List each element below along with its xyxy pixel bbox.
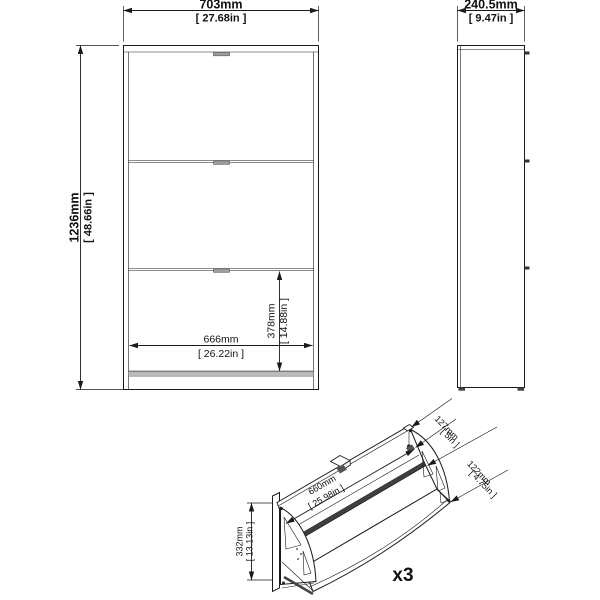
side-handle [525, 160, 530, 163]
side-handle-profiles [525, 52, 530, 270]
front-bottom-rail [129, 372, 314, 376]
dim-front-width: 703mm [ 27.68in ] [124, 0, 319, 42]
dim-side-depth: 240.5mm [ 9.47in ] [458, 0, 525, 42]
dim-detail-height-mm: 332mm [235, 526, 245, 556]
front-drawer-handles [214, 52, 230, 272]
dim-front-height-in: [ 48.66in ] [83, 192, 95, 243]
side-view: 240.5mm [ 9.47in ] [458, 0, 530, 391]
dim-front-inner-height: 378mm [ 14.88in ] [266, 272, 291, 372]
dim-side-depth-in: [ 9.47in ] [469, 13, 514, 25]
side-handle [525, 52, 530, 55]
dim-front-width-mm: 703mm [199, 0, 242, 12]
side-foot [459, 388, 466, 391]
dim-inner-height-mm: 378mm [266, 303, 278, 338]
dim-detail-height-in: [ 13.13in ] [245, 522, 255, 562]
side-handle [525, 267, 530, 270]
detail-quantity-label: x3 [392, 565, 413, 586]
side-cabinet-outline [458, 46, 525, 388]
drawer-handle [214, 269, 230, 272]
dim-front-height: 1236mm [ 48.66in ] [68, 46, 124, 390]
dim-front-width-in: [ 27.68in ] [196, 13, 247, 25]
drawer-handle [214, 52, 230, 55]
front-view: 703mm [ 27.68in ] 1236mm [ 48.66in ] 666… [68, 0, 319, 390]
dim-inner-width-mm: 666mm [203, 334, 238, 346]
dim-side-depth-mm: 240.5mm [464, 0, 518, 12]
hinge-pivot [448, 500, 451, 503]
dim-detail-top-in: [ 5in ] [439, 427, 461, 450]
dim-inner-height-in: [ 14.88in ] [278, 298, 290, 344]
hinge-pivot [279, 507, 283, 511]
dim-inner-width-in: [ 26.22in ] [198, 348, 244, 360]
dim-detail-height: 332mm [ 13.13in ] [235, 503, 273, 580]
hinge-pivot [282, 582, 285, 585]
detail-view: 660mm [ 25.98in ] 332mm [ 13.13in ] 127m… [235, 399, 509, 595]
technical-drawing-page: 703mm [ 27.68in ] 1236mm [ 48.66in ] 666… [0, 0, 600, 600]
shoe-cabinet-dimension-drawing: 703mm [ 27.68in ] 1236mm [ 48.66in ] 666… [0, 0, 600, 600]
side-foot [518, 388, 525, 391]
drawer-handle [214, 161, 230, 164]
dim-front-height-mm: 1236mm [68, 192, 82, 242]
